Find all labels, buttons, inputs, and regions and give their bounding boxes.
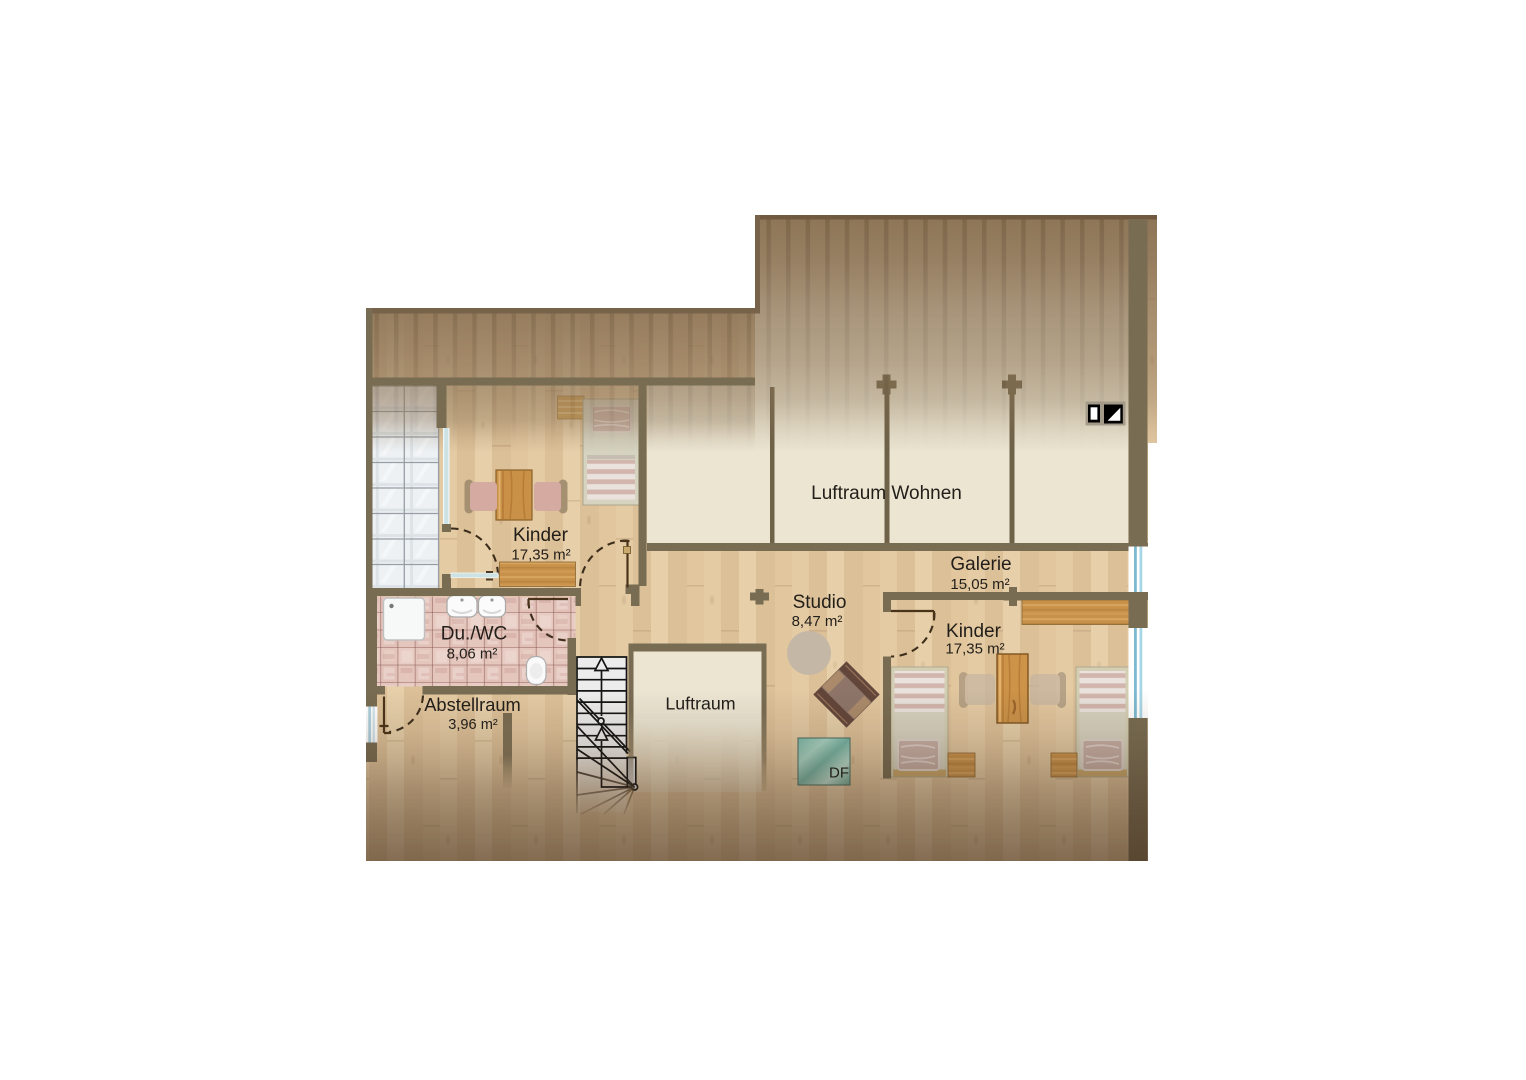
svg-text:15,05 m²: 15,05 m² <box>950 576 1009 593</box>
svg-text:Studio: Studio <box>793 592 847 613</box>
svg-text:Kinder: Kinder <box>513 525 569 546</box>
svg-text:17,35 m²: 17,35 m² <box>945 641 1004 658</box>
svg-text:Luftraum Wohnen: Luftraum Wohnen <box>811 483 962 504</box>
svg-text:3,96 m²: 3,96 m² <box>448 717 498 733</box>
svg-text:Du./WC: Du./WC <box>441 624 508 645</box>
svg-text:8,47 m²: 8,47 m² <box>792 613 843 630</box>
svg-text:Kinder: Kinder <box>946 621 1002 642</box>
svg-text:17,35 m²: 17,35 m² <box>511 547 570 564</box>
svg-text:Luftraum: Luftraum <box>665 694 735 714</box>
svg-text:DF: DF <box>829 765 849 782</box>
svg-text:Abstellraum: Abstellraum <box>424 694 521 715</box>
svg-text:Galerie: Galerie <box>950 554 1011 575</box>
svg-text:8,06 m²: 8,06 m² <box>447 646 498 663</box>
